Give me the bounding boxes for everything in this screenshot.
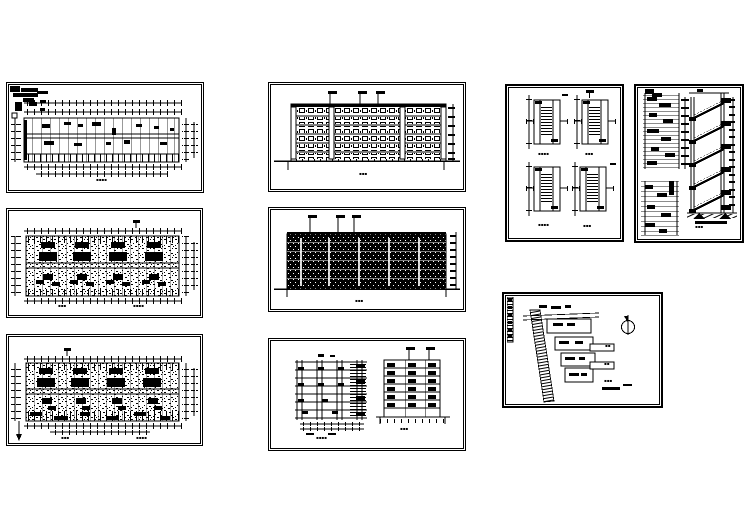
callout-label-mark: ▪▪	[605, 344, 610, 348]
stair-plan-detail-2	[574, 95, 616, 149]
wall-detail-bottom	[641, 181, 679, 235]
bottom-wall-cells	[24, 154, 179, 162]
rear-elevation-drawing	[272, 211, 462, 308]
stair-section-drawing	[639, 89, 741, 240]
drawing-title-mark: ▪▪▪▪	[316, 436, 327, 440]
roof-line	[291, 104, 446, 107]
bottom-dense-band	[26, 411, 179, 421]
floor-plan-2-drawing	[10, 212, 199, 314]
drawing-sheet: ▪▪▪▪	[0, 0, 749, 530]
panel-floor-plan-3: ▪▪▪ ▪▪▪▪	[6, 334, 203, 446]
dimension-rows-below	[300, 422, 364, 435]
drawing-title-mark: ▪▪▪	[58, 304, 66, 308]
panel-front-elevation: ▪▪▪	[268, 82, 466, 192]
callout-box-2	[590, 362, 614, 369]
dimension-stack-right	[448, 104, 455, 161]
callout-flags	[328, 91, 385, 94]
drawing-title-mark: ▪▪▪	[400, 427, 408, 431]
title-strip	[507, 297, 513, 342]
site-plan-drawing	[507, 297, 660, 405]
drawing-title-mark: ▪▪▪	[604, 379, 612, 383]
drawing-title-mark: ▪▪▪	[695, 225, 703, 229]
section-right	[376, 347, 450, 424]
drawing-title-mark: ▪▪▪	[359, 172, 367, 176]
panel-stair-plans: ▪▪▪▪ ▪▪▪ ▪▪▪▪ ▪▪▪	[505, 84, 624, 242]
callout-leaders	[330, 94, 378, 104]
section-arrow-down	[16, 421, 22, 441]
callout-label-mark: ▪▪	[604, 362, 609, 366]
panel-site-plan: ▪▪ ▪▪ ▪▪▪	[502, 292, 663, 408]
sections-drawing	[272, 342, 462, 447]
wall-detail-top	[643, 89, 679, 169]
stair-flights	[687, 89, 737, 224]
drawing-title-mark: ▪▪▪▪	[538, 152, 549, 156]
dimension-ticks-bottom	[24, 164, 182, 177]
drawing-title-mark: ▪▪▪	[583, 224, 591, 228]
drawing-title-mark: ▪▪▪	[355, 299, 363, 303]
callout-flags	[308, 215, 361, 218]
general-notes-block	[10, 86, 48, 111]
dimension-ticks-right	[182, 236, 198, 296]
stair-plans-drawing	[510, 89, 621, 239]
section-flag	[133, 220, 140, 228]
dimension-ticks-left	[11, 118, 21, 162]
panel-sections: ▪▪▪▪ ▪▪▪	[268, 338, 466, 451]
section-left	[295, 354, 367, 435]
end-wall	[24, 120, 27, 160]
dimension-dashes-right	[729, 99, 735, 206]
north-arrow-icon	[622, 315, 635, 335]
stair-plan-detail-1	[526, 95, 568, 149]
site-buildings	[547, 319, 595, 382]
dimension-ticks-left	[11, 363, 21, 421]
dimension-ticks-left	[11, 236, 21, 296]
panel-stair-section: ▪▪▪	[634, 84, 744, 243]
dimension-ticks-top	[24, 100, 182, 115]
ground-drops	[287, 289, 446, 297]
callout-leaders	[310, 218, 354, 232]
drawing-title-mark: ▪▪▪▪	[136, 436, 147, 440]
dimension-ticks-right	[182, 118, 198, 162]
title-underline	[602, 387, 620, 390]
dimension-ticks-bottom	[24, 298, 182, 304]
drawing-title-mark: ▪▪▪▪	[133, 304, 144, 308]
panel-floor-plan-1: ▪▪▪▪	[6, 82, 204, 193]
dimension-ticks-top	[24, 228, 182, 234]
section-flag	[64, 348, 71, 356]
level-tick-column	[681, 97, 689, 169]
drawing-title-mark: ▪▪▪	[585, 152, 593, 156]
stair-plan-detail-3	[526, 162, 568, 216]
panel-floor-plan-2: ▪▪▪ ▪▪▪▪	[6, 208, 203, 318]
panel-rear-elevation: ▪▪▪	[268, 207, 466, 312]
floor-plan-1-drawing	[10, 86, 200, 189]
drawing-title-mark: ▪▪▪▪	[96, 178, 107, 182]
stair-plan-detail-4	[572, 162, 614, 216]
dimension-stack-right	[450, 232, 456, 289]
ground-drops	[288, 161, 444, 170]
grid-bubble	[12, 113, 17, 118]
dimension-ticks-right	[182, 363, 198, 421]
detail-flag	[586, 90, 594, 98]
floor-plan-3-drawing	[10, 338, 199, 444]
drawing-title-mark: ▪▪▪▪	[538, 223, 549, 227]
roadside-marks	[539, 305, 571, 309]
dimension-ticks-bottom	[24, 423, 182, 435]
dimension-ticks-top	[24, 356, 182, 362]
drawing-title-mark: ▪▪▪	[61, 436, 69, 440]
